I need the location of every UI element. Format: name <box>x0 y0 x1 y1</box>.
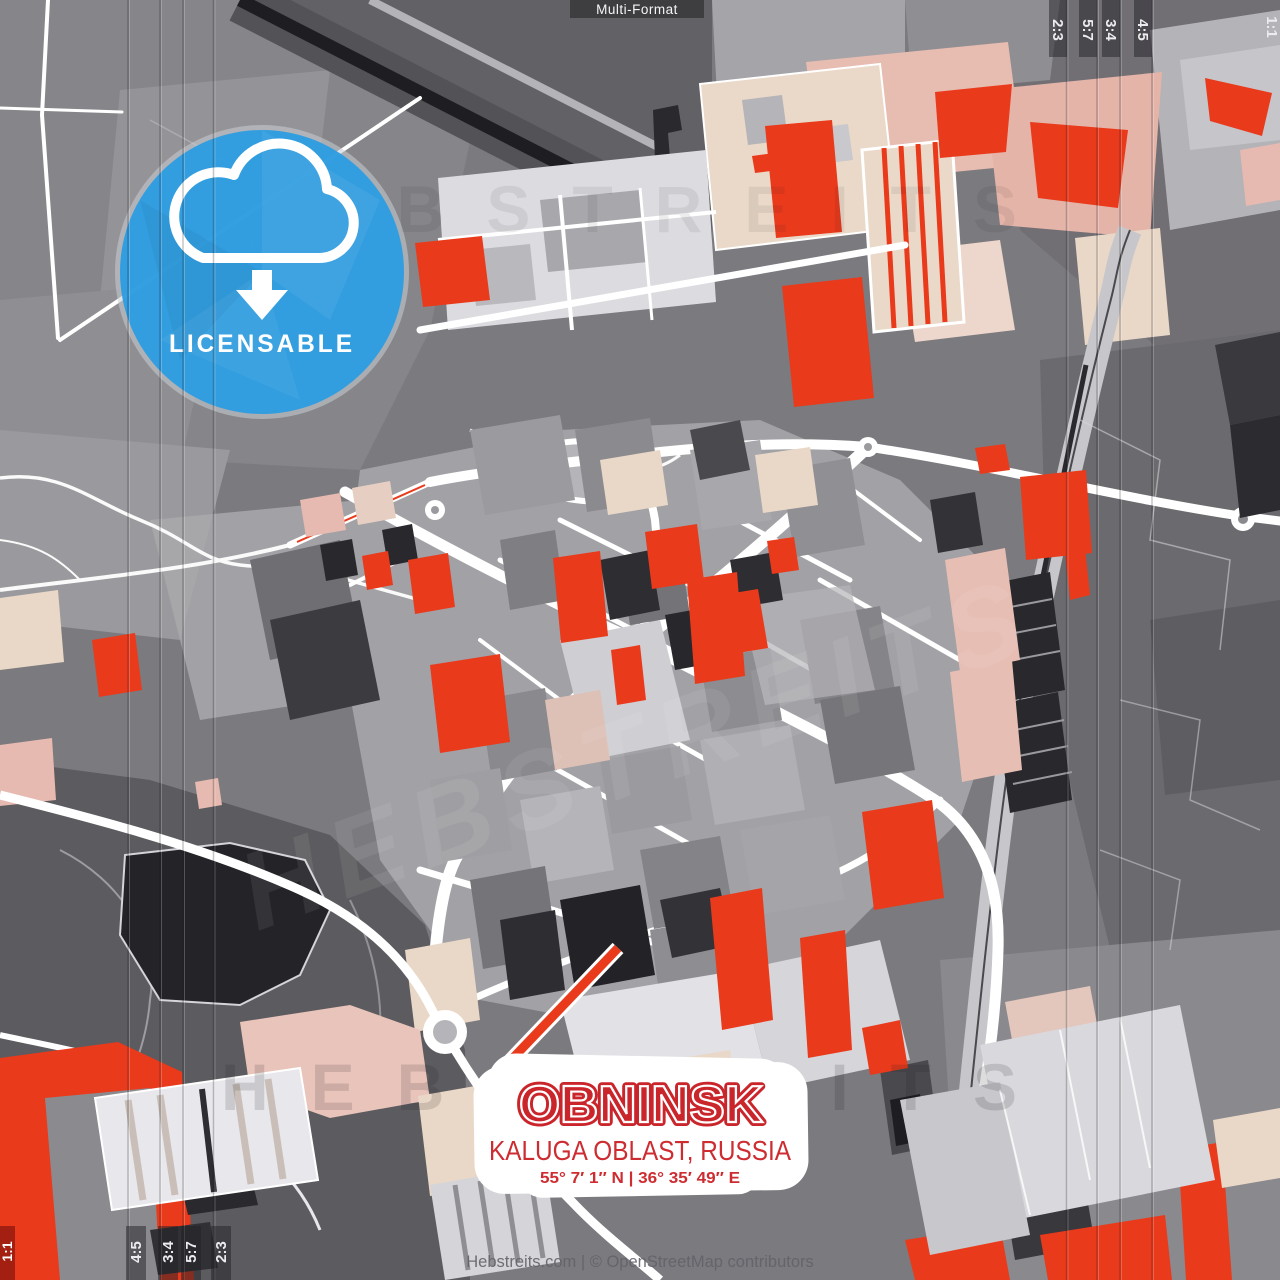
poster-canvas: HEBSTREITS HEBSTREITS HEBSTREITS LICENSA… <box>0 0 1280 1280</box>
format-label: 4:5 <box>128 1241 145 1263</box>
format-label: 4:5 <box>1134 19 1151 41</box>
multi-format-tag: Multi-Format <box>570 0 704 18</box>
format-label: 5:7 <box>183 1241 200 1263</box>
footer-credit: Hebstreits.com | © OpenStreetMap contrib… <box>466 1253 814 1271</box>
coordinates-text: 55° 7′ 1′′ N | 36° 35′ 49′′ E <box>540 1170 740 1187</box>
city-title: OBNINSK <box>519 1076 763 1134</box>
licensable-badge: LICENSABLE <box>115 125 409 419</box>
format-label: 2:3 <box>213 1241 230 1263</box>
format-label: 3:4 <box>1102 19 1119 41</box>
multi-format-label: Multi-Format <box>596 2 678 17</box>
region-subtitle: KALUGA OBLAST, RUSSIA <box>489 1135 791 1166</box>
format-label: 3:4 <box>160 1241 177 1263</box>
format-label-square-bottom: 1:1 <box>0 1241 15 1261</box>
badge-label: LICENSABLE <box>169 330 355 358</box>
map-poster-preview: HEBSTREITS HEBSTREITS HEBSTREITS LICENSA… <box>0 0 1280 1280</box>
format-label: 5:7 <box>1079 19 1096 41</box>
title-panel: OBNINSK OBNINSK KALUGA OBLAST, RUSSIA 55… <box>473 1053 809 1198</box>
format-label-square-top: 1:1 <box>1263 16 1280 38</box>
format-label: 2:3 <box>1049 19 1066 41</box>
